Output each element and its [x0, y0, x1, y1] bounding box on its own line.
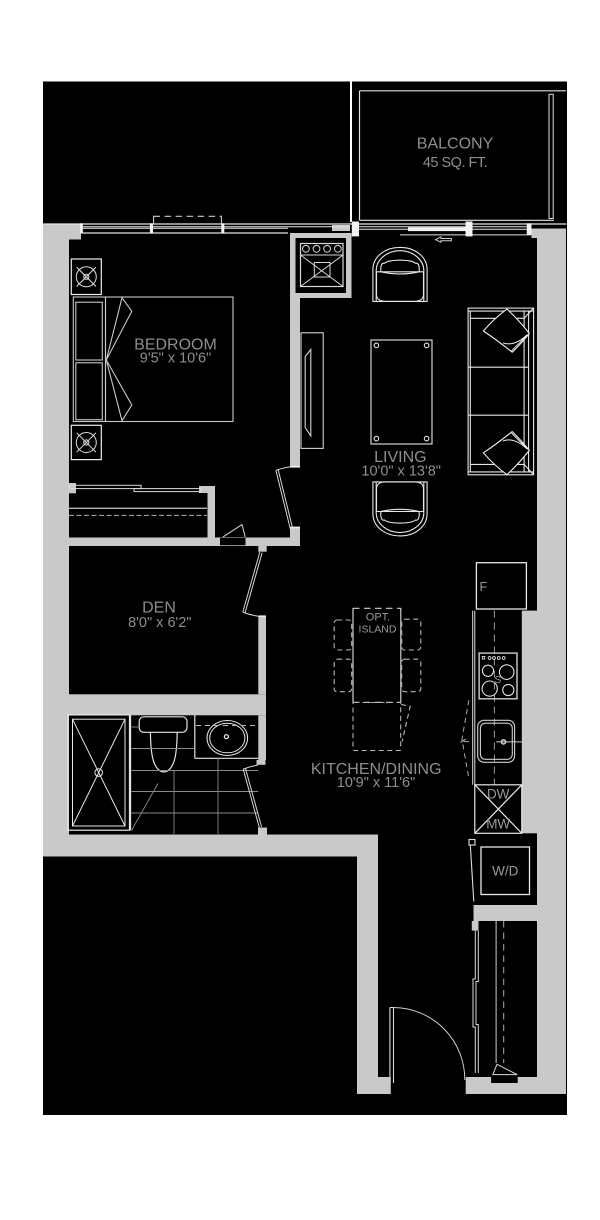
svg-text:W/D: W/D: [492, 864, 518, 879]
svg-text:ISLAND: ISLAND: [359, 623, 397, 635]
svg-text:F: F: [480, 580, 488, 594]
svg-text:DW: DW: [487, 786, 510, 801]
svg-text:BALCONY: BALCONY: [417, 136, 494, 153]
svg-text:9'5" x 10'6": 9'5" x 10'6": [140, 351, 211, 367]
svg-text:10'9" x 11'6": 10'9" x 11'6": [337, 775, 415, 791]
svg-text:S: S: [494, 675, 501, 686]
svg-text:45 SQ. FT.: 45 SQ. FT.: [423, 155, 487, 171]
svg-text:MW: MW: [486, 817, 510, 832]
svg-text:10'0" x 13'8": 10'0" x 13'8": [361, 464, 441, 480]
svg-text:DEN: DEN: [142, 600, 176, 617]
svg-text:8'0" x 6'2": 8'0" x 6'2": [128, 615, 191, 631]
svg-text:OPT.: OPT.: [366, 612, 390, 624]
